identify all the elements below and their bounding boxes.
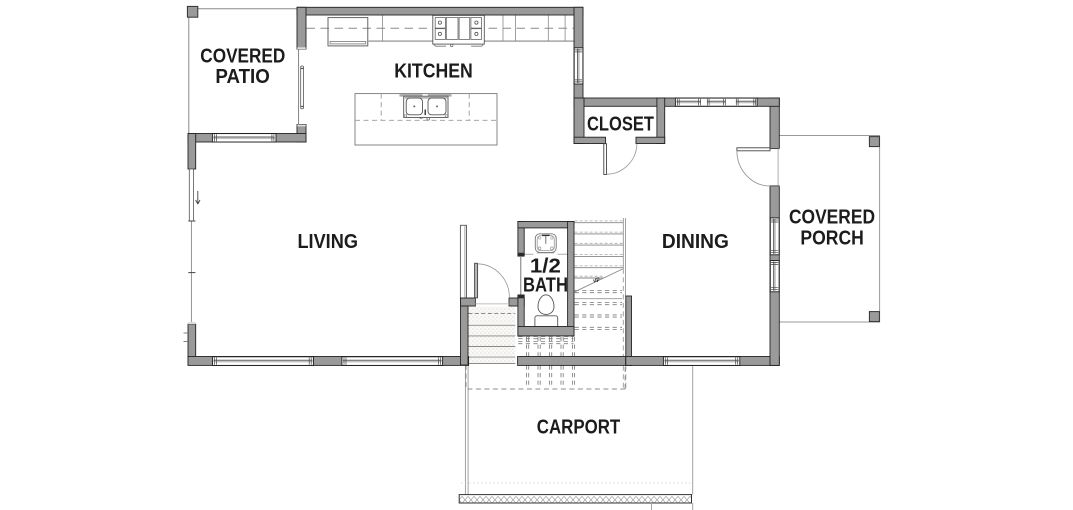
svg-text:BATH: BATH: [523, 274, 568, 296]
svg-text:CARPORT: CARPORT: [537, 416, 621, 438]
svg-text:KITCHEN: KITCHEN: [394, 60, 473, 82]
svg-text:up: up: [592, 276, 601, 285]
svg-text:DINING: DINING: [662, 231, 729, 253]
svg-text:PORCH: PORCH: [800, 227, 864, 249]
svg-text:PATIO: PATIO: [215, 66, 270, 88]
svg-text:CLOSET: CLOSET: [587, 113, 654, 135]
svg-text:COVERED: COVERED: [200, 45, 285, 67]
svg-text:COVERED: COVERED: [789, 206, 875, 228]
svg-text:LIVING: LIVING: [297, 231, 358, 253]
